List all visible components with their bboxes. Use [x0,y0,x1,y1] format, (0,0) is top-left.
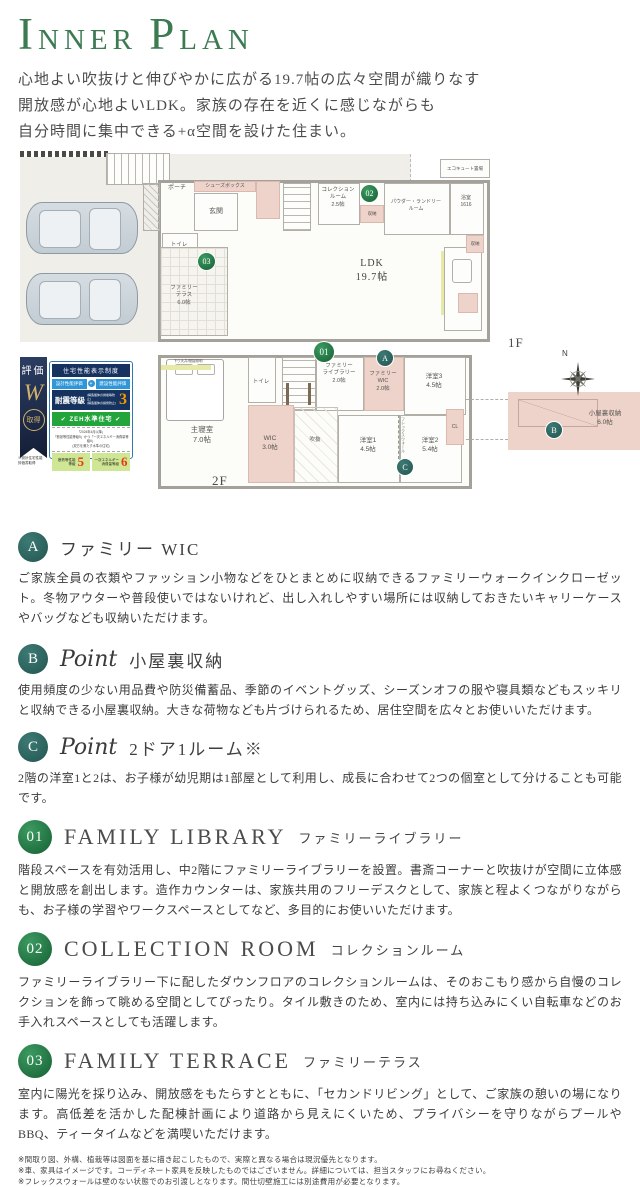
point-script-label: Point [60,735,117,760]
seismic-grade-bar: 耐震等級 (構造躯体の倒壊等防止) (構造躯体の損傷防止) 3 [52,390,130,410]
section-01-title-jp: ファミリーライブラリー [299,828,464,847]
storage-1f-right: 収納 [466,235,484,253]
shoebox: シューズボックス [194,181,256,192]
section-c-body: 2階の洋室1と2は、お子様が幼児期は1部屋として利用し、成長に合わせて2つの個室… [18,768,622,808]
rating-caption: ※設計住宅性能 評価書取得 [18,456,52,465]
intro-line: 開放感が心地よいLDK。家族の存在を近くに感じながらも [18,93,622,119]
footnotes: ※間取り図、外構、植栽等は図面を基に描き起こしたもので、実際と異なる場合は現況優… [18,1154,622,1187]
seismic-value: 3 [119,392,127,408]
section-a-title: ファミリー WIC [60,535,200,560]
floor-plan-figure: ポーチ シューズボックス 玄関 トイレ コレクション ルーム 2.5帖 02 収… [0,147,640,522]
zeh-bar: ✔ ZEH水準住宅 ✔ [52,412,130,426]
flex-wall-line [398,415,399,459]
section-03-heading: 03 FAMILY TERRACE ファミリーテラス [18,1044,622,1078]
family-library-label: ファミリー ライブラリー 2.0帖 [314,363,364,385]
energy-grade-label: 一次エネルギー 消費量等級 [95,458,120,467]
void-area [294,407,338,483]
section-a-body: ご家族全員の衣類やファッション小物などをひとまとめに収納できるファミリーウォーク… [18,568,622,628]
footnote: ※フレックスウォールは壁のない状態でのお引渡しとなります。間仕切壁施工には別途費… [18,1176,622,1187]
rating-card-header: 住宅性能表示制度 [52,364,130,377]
intro-line: 心地よい吹抜けと伸びやかに広がる19.7帖の広々空間が織りなす [18,67,622,93]
car-2 [26,273,138,325]
toilet-2f-label: トイレ [246,379,276,386]
marker-a-badge: A [18,532,48,562]
section-02: 02 COLLECTION ROOM コレクションルーム ファミリーライブラリー… [18,932,622,1032]
ecocute-box: エコキュート置場 [440,159,490,178]
kitchen-sink [452,259,472,283]
wic-room-label: WIC 3.0帖 [250,435,290,453]
section-02-title-en: COLLECTION ROOM [64,936,319,962]
marker-01-plan: 01 [314,342,334,362]
design-eval-label: 設計性能評価 [52,379,87,389]
section-b-title: 小屋裏収納 [129,647,224,672]
section-01-body: 階段スペースを有効活用し、中2階にファミリーライブラリーを設置。書斎コーナーと吹… [18,860,622,920]
entry-closet [256,181,280,219]
stair-handrail [308,383,311,405]
car-window [39,210,81,248]
energy-grade-box: 一次エネルギー 消費量等級 6 [92,453,130,471]
bath-room [450,183,484,235]
marker-c-badge: C [18,732,48,762]
intro-line: 自分時間に集中できる+α空間を設けた住まい。 [18,119,622,145]
ldk-label: LDK 19.7帖 [348,257,396,285]
indirect-light-strip [161,365,211,370]
ceiling-note: 下り天井/間接照明 [162,359,214,364]
seismic-label: 耐震等級 [55,395,85,406]
insulation-grade-box: 断熱等性能 等級 5 [52,453,90,471]
section-a-heading: A ファミリー WIC [18,532,622,562]
bath-label: 浴室 1616 [450,195,482,209]
porch-tiles [143,183,160,231]
section-01: 01 FAMILY LIBRARY ファミリーライブラリー 階段スペースを有効活… [18,820,622,920]
rating-ribbon: 評価 W 取得 [20,357,47,458]
seismic-note: (構造躯体の倒壊等防止) (構造躯体の損傷防止) [87,394,117,405]
marker-b-badge: B [18,644,48,674]
footnote: ※間取り図、外構、植栽等は図面を基に描き起こしたもので、実際と異なる場合は現況優… [18,1154,622,1165]
rating-card: 住宅性能表示制度 設計性能評価 + 建設性能評価 耐震等級 (構造躯体の倒壊等防… [49,361,133,459]
energy-grade-value: 6 [121,454,128,470]
floor2-label: 2F [212,473,228,489]
marker-c-plan: C [397,459,413,475]
powder-laundry-label: パウダー・ランドリー ルーム [382,199,450,213]
western-room3-label: 洋室3 4.5帖 [408,373,460,391]
compass: N [554,351,600,399]
section-02-heading: 02 COLLECTION ROOM コレクションルーム [18,932,622,966]
car-windshield [89,208,121,250]
footnote: ※車、家具はイメージです。コーディネート家具を反映したものではございません。詳細… [18,1165,622,1176]
family-terrace-label: ファミリー テラス 6.0帖 [161,285,207,307]
section-03-title-jp: ファミリーテラス [303,1052,423,1071]
zeh-note: 「2024年4月以降」 「断熱等性能等級5」かつ「一次エネルギー消費量等級6」 … [52,427,130,452]
flex-wall-label: フレックスウォール [400,417,406,453]
section-03: 03 FAMILY TERRACE ファミリーテラス 室内に陽光を採り込み、開放… [18,1044,622,1144]
marker-a-plan: A [377,350,393,366]
car-windshield [89,279,121,321]
page-title: INNER PLAN [18,12,622,57]
section-c: C Point 2ドア1ルーム※ 2階の洋室1と2は、お子様が幼児期は1部屋とし… [18,732,622,808]
plus-icon: + [88,380,95,387]
section-b: B Point 小屋裏収納 使用頻度の少ない用品費や防災備蓄品、季節のイベントグ… [18,644,622,720]
marker-b-plan: B [546,422,562,438]
site-hatch-strip [20,151,108,157]
ribbon-hyoka-label: 評価 [22,362,46,377]
attic-connector-line [466,399,508,400]
point-script-label: Point [60,647,117,672]
porch-label: ポーチ [161,184,193,192]
attic-connector-line [466,439,508,440]
section-03-title-en: FAMILY TERRACE [64,1048,291,1074]
bedroom-label: 主寝室 7.0帖 [178,425,226,445]
section-01-heading: 01 FAMILY LIBRARY ファミリーライブラリー [18,820,622,854]
marker-03-plan: 03 [198,253,215,270]
section-c-heading: C Point 2ドア1ルーム※ [18,732,622,762]
compass-n-label: N [562,349,568,358]
entrance-room: 玄関 [194,193,238,231]
section-b-body: 使用頻度の少ない用品費や防災備蓄品、季節のイベントグッズ、シーズンオフの服や寝具… [18,680,622,720]
kitchen-accent-strip [441,251,444,315]
western-room1-label: 洋室1 4.5帖 [342,437,394,455]
section-b-heading: B Point 小屋裏収納 [18,644,622,674]
section-a: A ファミリー WIC ご家族全員の衣類やファッション小物などをひとまとめに収納… [18,532,622,628]
stair-handrail [286,383,289,405]
section-02-body: ファミリーライブラリー下に配したダウンフロアのコレクションルームは、そのおこもり… [18,972,622,1032]
compass-icon [554,351,600,399]
section-02-title-jp: コレクションルーム [331,940,466,959]
floor1-label: 1F [508,335,524,351]
header: INNER PLAN 心地よい吹抜けと伸びやかに広がる19.7帖の広々空間が織り… [0,0,640,145]
attic-storage-box: 小屋裏収納 6.0帖 B [508,392,640,450]
ribbon-w-letter: W [24,380,43,406]
insulation-grade-value: 5 [78,454,85,470]
section-03-body: 室内に陽光を採り込み、開放感をもたらすとともに、「セカンドリビング」として、ご家… [18,1084,622,1144]
kitchen-stove [458,293,478,313]
insulation-grade-label: 断熱等性能 等級 [58,458,76,467]
car-1 [26,202,138,254]
construction-eval-label: 建設性能評価 [96,379,131,389]
car-window [39,281,81,319]
void-label: 吹抜 [300,437,330,444]
intro-text: 心地よい吹抜けと伸びやかに広がる19.7帖の広々空間が織りなす 開放感が心地よい… [18,67,622,145]
inner-plan-page: INNER PLAN 心地よい吹抜けと伸びやかに広がる19.7帖の広々空間が織り… [0,0,640,1110]
stairs-1f [283,183,311,231]
storage-1f: 収納 [360,205,384,223]
section-c-title: 2ドア1ルーム※ [129,735,264,760]
marker-03-badge: 03 [18,1044,52,1078]
collection-room-label: コレクション ルーム 2.5帖 [316,187,360,209]
family-wic-label: ファミリー WIC 2.0帖 [362,371,404,393]
grade-boxes: 断熱等性能 等級 5 一次エネルギー 消費量等級 6 [52,453,130,471]
marker-02-badge: 02 [18,932,52,966]
ribbon-shutoku-label: 取得 [23,409,45,431]
attic-storage-label: 小屋裏収納 6.0帖 [574,410,636,428]
section-01-title-en: FAMILY LIBRARY [64,824,287,850]
marker-02-plan: 02 [361,185,378,202]
evaluation-row: 設計性能評価 + 建設性能評価 [52,379,130,389]
marker-01-badge: 01 [18,820,52,854]
rating-badge: 評価 W 取得 ※設計住宅性能 評価書取得 住宅性能表示制度 設計性能評価 + … [18,355,130,473]
closet-cl: CL [446,409,464,445]
